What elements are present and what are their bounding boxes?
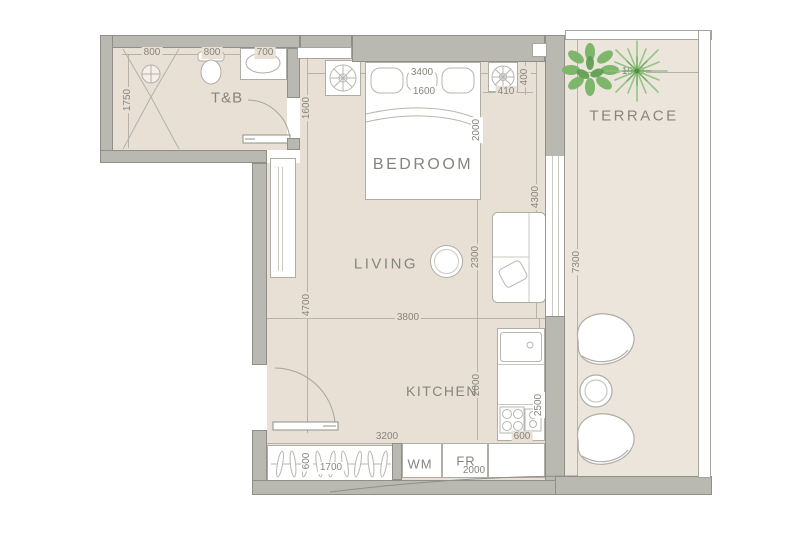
terrace-parapet-right [698,30,711,478]
room-label-living: LIVING [354,256,418,273]
wall-living-left [252,163,267,365]
palm-icon [604,38,670,104]
dim-label: 1600 [411,86,437,98]
window-top-1 [297,47,352,59]
dim-label: 410 [496,86,517,98]
dim-label: 2300 [470,244,482,270]
room-label-bedroom: BEDROOM [373,156,473,174]
dim-label: 7300 [571,249,583,275]
counter-divider [498,364,544,365]
dim-label: 800 [142,47,163,59]
wall-living-left-lower [252,430,267,482]
room-label-kitchen: KITCHEN [406,383,478,399]
dim-label: 2500 [533,392,545,418]
entry-door-symbol [265,360,345,435]
dim-label: 600 [301,451,313,472]
floor-plan: 800 800 700 1750 1600 3400 1600 400 410 … [0,0,800,533]
glass-sliding-door [545,156,565,316]
appliance-label-wm: WM [407,457,432,472]
room-label-terrace: TERRACE [589,108,678,125]
table-icon [430,245,463,278]
dim-label: 1700 [318,462,344,474]
wall-bedroom-top [352,35,545,62]
dim-label: 600 [512,431,533,443]
dim-label: 4700 [301,292,313,318]
dim-label: 3800 [395,312,421,324]
threshold-curve [330,472,580,497]
wall-tb-bottom [100,150,267,163]
appliance-label-fr: FR [456,454,475,469]
kitchen-sink-icon [500,332,542,362]
dim-label: 3400 [409,67,435,79]
dim-label: 1750 [122,87,134,113]
room-label-tb: T&B [211,90,243,107]
dim-label: 1600 [301,95,313,121]
dim-label: 3200 [374,431,400,443]
dim-label: 700 [255,47,276,59]
wall-tb-left [100,35,113,163]
dim-label: 2000 [471,117,483,143]
sofa-icon [492,212,546,303]
dim-label: 400 [519,67,531,88]
wall-tb-right-stub [287,138,300,150]
wall-right-lower [545,316,565,482]
ceiling-fan-icon [325,60,361,96]
dim-label: 4300 [530,184,542,210]
dim-label: 800 [202,47,223,59]
terrace-chairs-icon [566,306,650,474]
wardrobe-symbol [270,158,296,278]
window-top-2 [532,43,547,57]
bed-icon [365,62,481,200]
